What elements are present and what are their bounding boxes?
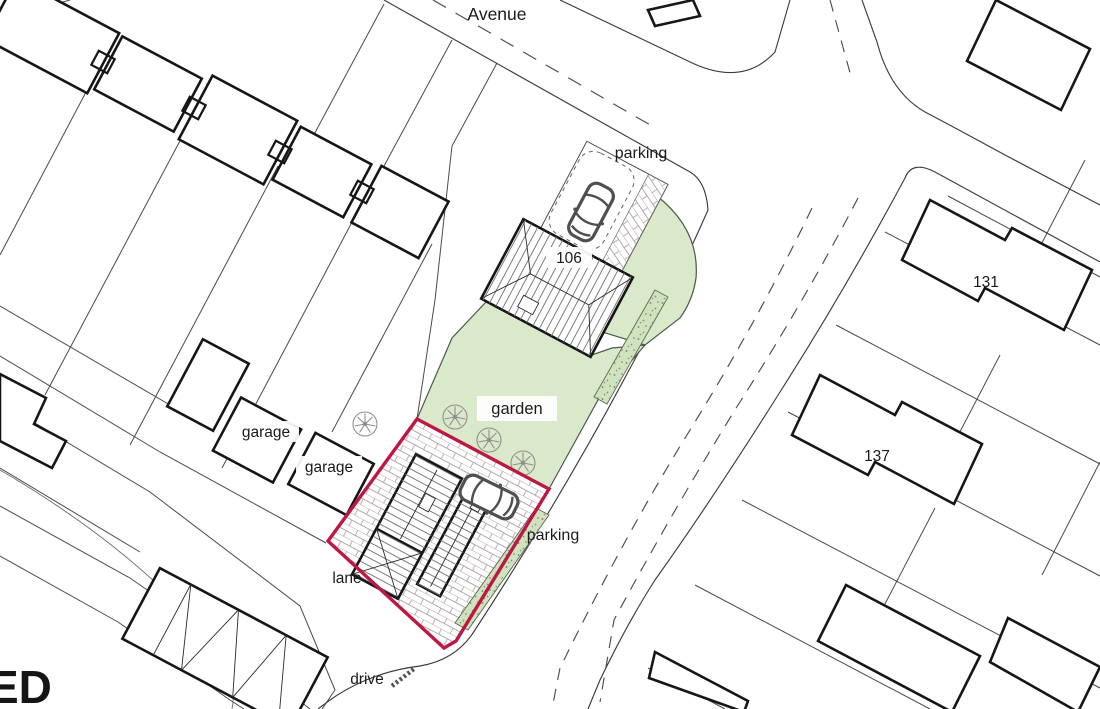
label-parking-side: parking bbox=[527, 527, 579, 544]
label-drive: drive bbox=[350, 671, 384, 688]
label-house-137: 137 bbox=[864, 448, 890, 465]
label-parking-top: parking bbox=[615, 145, 667, 162]
label-garage-lower: garage bbox=[305, 459, 353, 476]
label-street-partial: ED bbox=[0, 661, 52, 709]
label-lane: lane bbox=[332, 570, 361, 587]
label-house-131: 131 bbox=[973, 274, 999, 291]
label-garden: garden bbox=[491, 400, 542, 418]
map-canvas: Avenue parking 106 garden garage garage … bbox=[0, 0, 1100, 709]
label-house-106: 106 bbox=[556, 250, 582, 267]
site-plan-map: Avenue parking 106 garden garage garage … bbox=[0, 0, 1100, 709]
label-avenue: Avenue bbox=[467, 4, 526, 24]
label-garage-upper: garage bbox=[242, 424, 290, 441]
